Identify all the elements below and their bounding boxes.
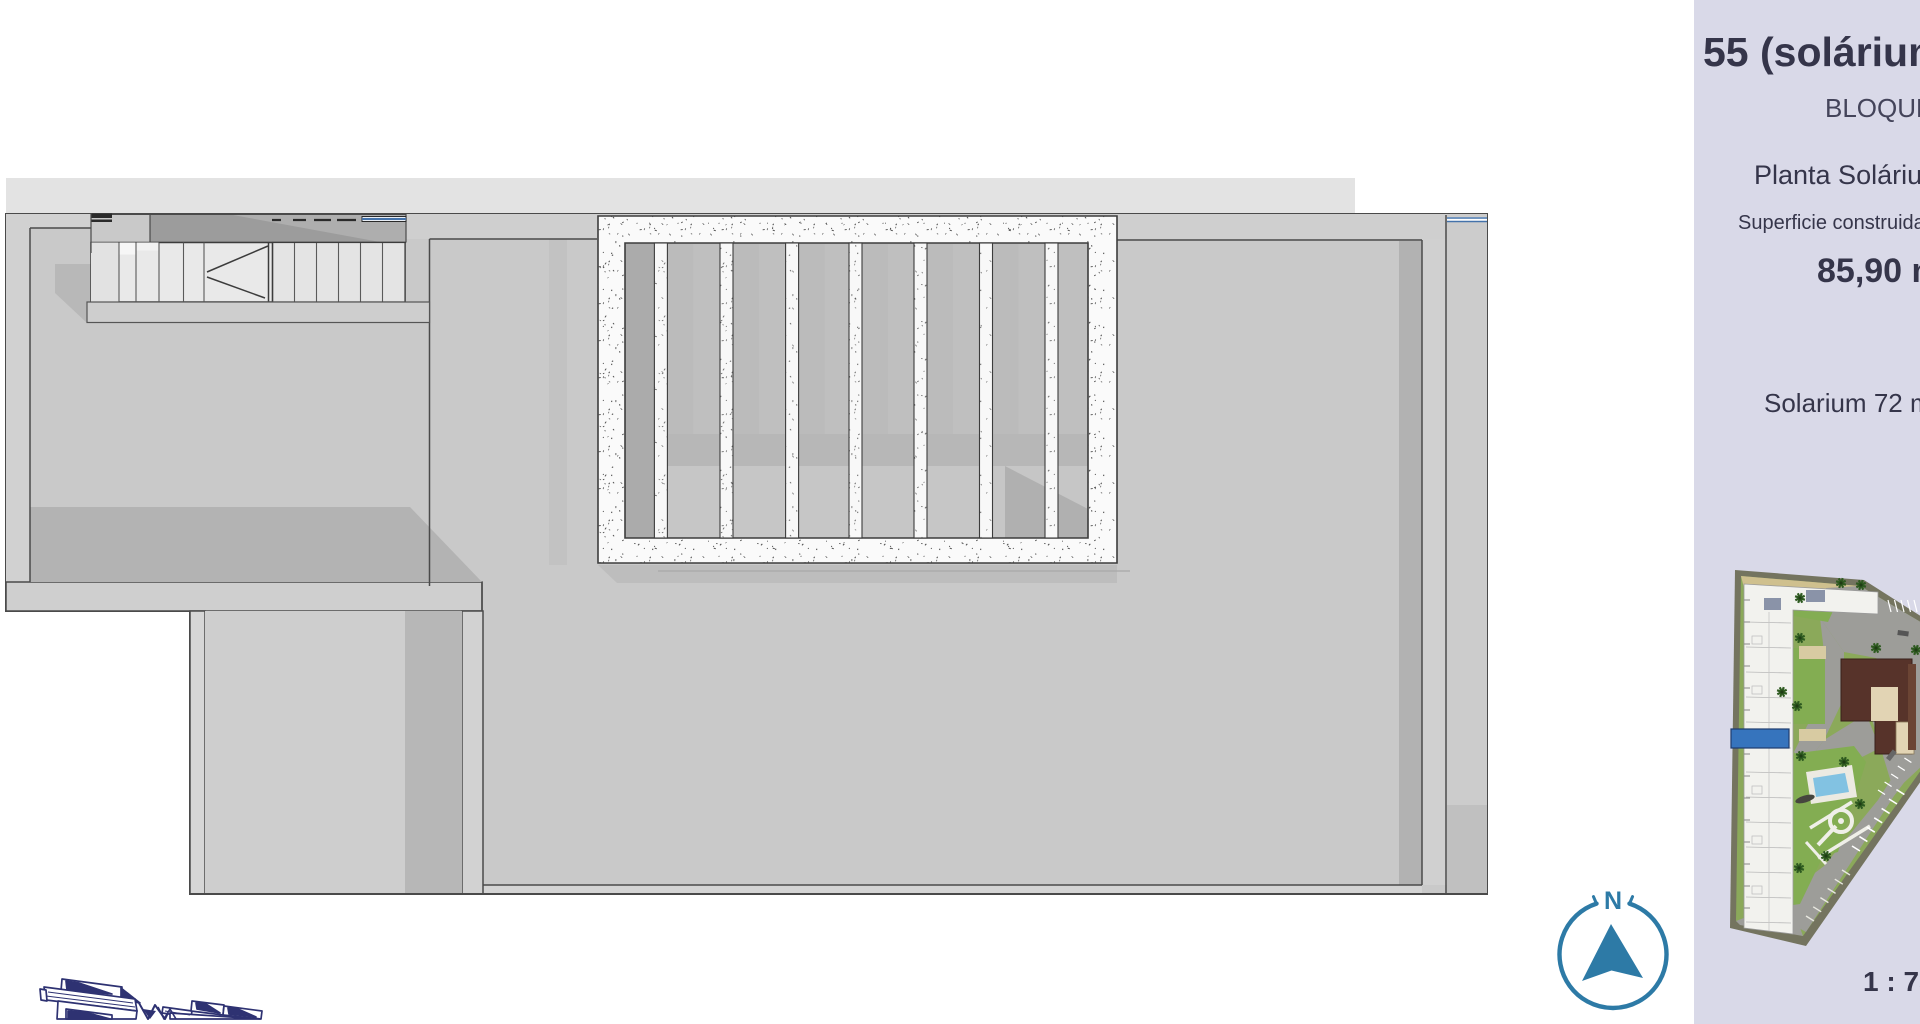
svg-text:Superficie construida: Superficie construida	[1738, 212, 1920, 234]
svg-text:Solarium 72 m²: Solarium 72 m²	[1764, 388, 1920, 418]
svg-text:BLOQUE 5: BLOQUE 5	[1825, 93, 1920, 123]
svg-text:Planta Solárium: Planta Solárium	[1754, 160, 1920, 190]
svg-text:85,90 m²: 85,90 m²	[1817, 252, 1920, 290]
svg-text:55 (solárium): 55 (solárium)	[1703, 29, 1920, 75]
svg-text:1 : 750: 1 : 750	[1863, 966, 1920, 997]
svg-text:N: N	[1604, 887, 1622, 915]
